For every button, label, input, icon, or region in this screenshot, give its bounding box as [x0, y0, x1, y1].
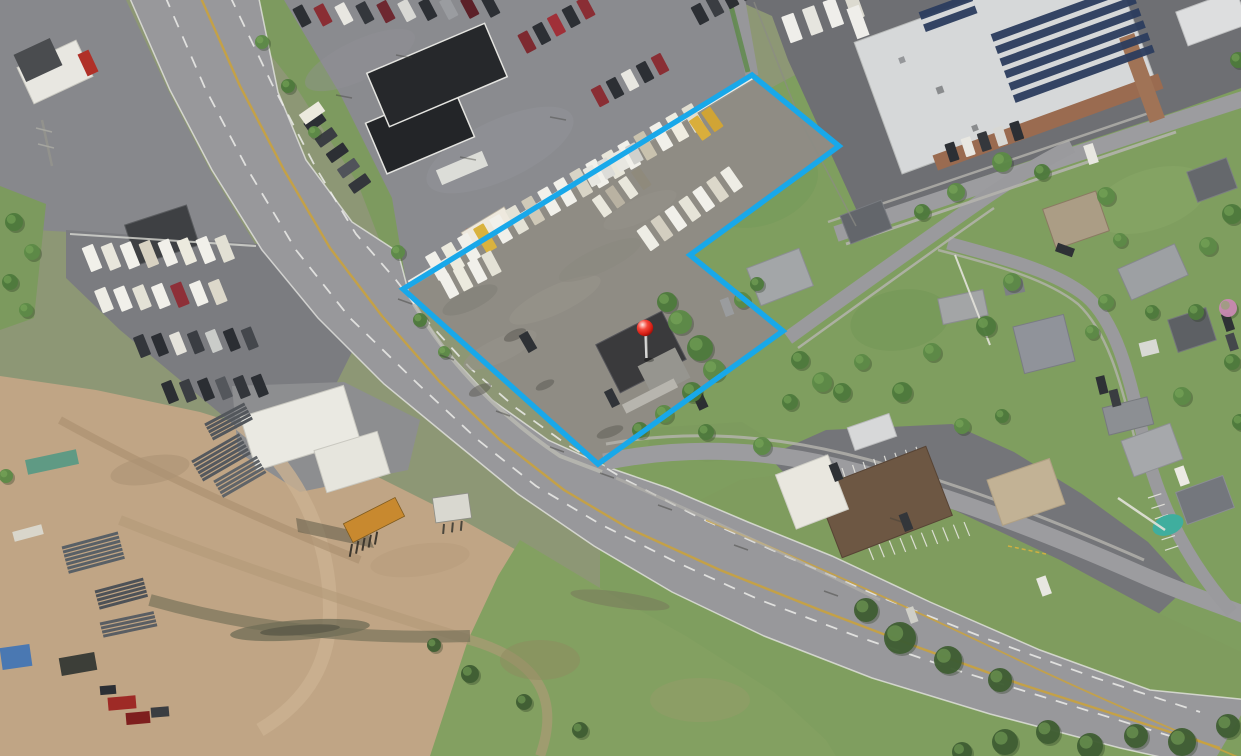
aerial-imagery-canvas [0, 0, 1241, 756]
pin-ball [637, 320, 653, 336]
aerial-map-viewport[interactable] [0, 0, 1241, 756]
pin-shadow [644, 358, 654, 362]
